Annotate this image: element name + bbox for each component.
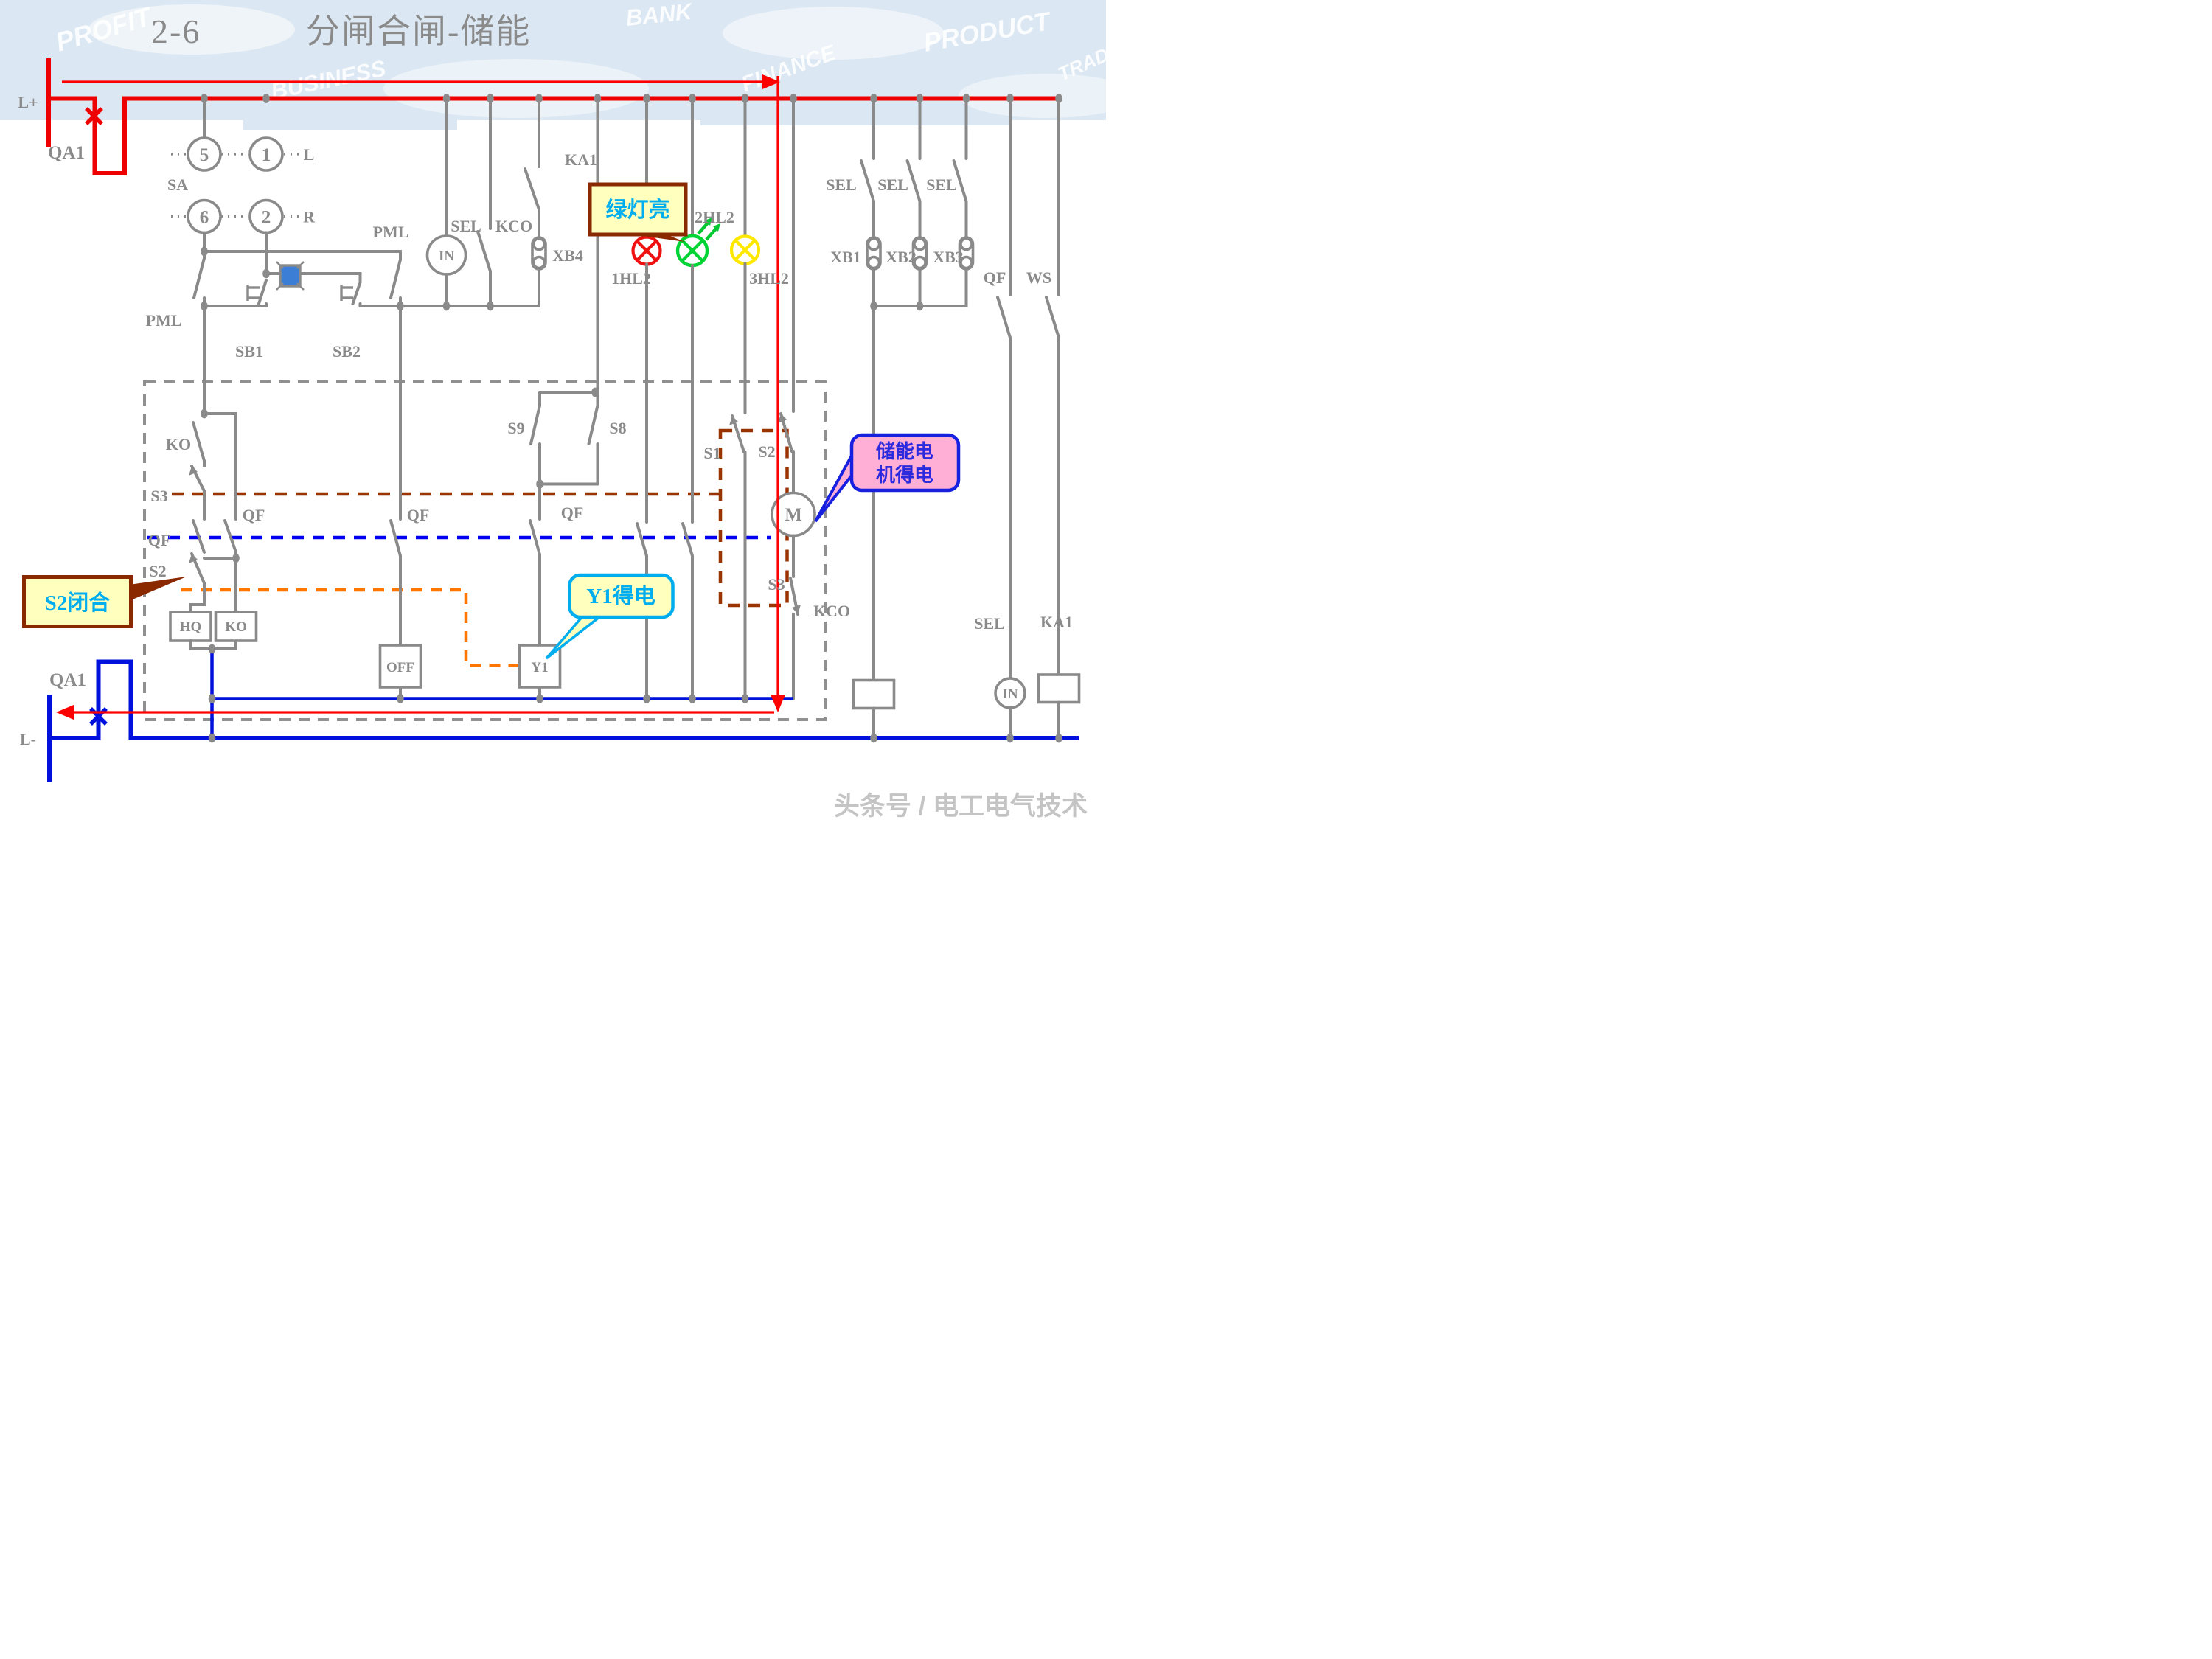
l-minus-label: L- (20, 730, 36, 748)
sel-c-label: SEL (926, 175, 957, 194)
pml-right-contact (391, 260, 400, 298)
s2-left-label: S2 (149, 562, 166, 580)
flow-arrow-left (56, 705, 74, 720)
kco-top-label: KCO (495, 217, 532, 235)
ko-contact (193, 422, 204, 461)
callout-motor-line1: 储能电 (876, 440, 933, 462)
sel-xb-trio (854, 99, 973, 739)
ko-coil-text: KO (225, 619, 247, 635)
feed-pml-right (204, 251, 400, 260)
map-blob-2 (383, 59, 649, 118)
callout-motor: 储能电 机得电 (815, 435, 959, 521)
callout-y1-text: Y1得电 (586, 583, 655, 608)
ko-switch-label: KO (166, 435, 191, 453)
ka1-top-label: KA1 (565, 150, 597, 169)
callout-motor-line2: 机得电 (876, 465, 933, 486)
pml-left-label: PML (146, 311, 182, 330)
pml-left-contact (194, 258, 204, 298)
kco-contact (478, 232, 490, 271)
xb2-branch (908, 99, 927, 307)
ka1-coil-box (1039, 675, 1079, 703)
sel-contact-b (908, 161, 920, 201)
qf-right-contact (998, 297, 1010, 338)
off-coil-text: OFF (386, 660, 414, 675)
credit-watermark: 头条号 / 电工电气技术 (834, 792, 1088, 821)
callout-y1: Y1得电 (546, 575, 673, 658)
sb2-label: SB2 (333, 342, 361, 361)
callout-y1-tail (546, 616, 600, 658)
qf-offcol-label: QF (407, 506, 430, 524)
callout-motor-tail (815, 456, 852, 521)
sel-b-label: SEL (877, 175, 908, 194)
xb1-label: XB1 (830, 248, 861, 266)
lamp-1hl2-red (633, 237, 661, 265)
s8-contact (589, 406, 598, 444)
l-plus-label: L+ (18, 93, 38, 111)
off-column (380, 306, 421, 699)
y1-coil-text: Y1 (531, 660, 548, 675)
qf-y1col-label: QF (561, 504, 584, 522)
sb2-button-head (341, 285, 353, 301)
s3-right-label: S3 (768, 575, 785, 594)
sa-2: 2 (262, 208, 271, 228)
xb2-label: XB2 (886, 248, 917, 266)
s1-label: S1 (703, 444, 720, 462)
ka1-bottom-label: KA1 (1040, 613, 1073, 631)
qf-contact-1hl2 (637, 524, 647, 556)
current-flow-path (56, 74, 785, 720)
sa-label: SA (167, 175, 188, 194)
in-top-text: IN (439, 248, 454, 264)
sb1-label: SB1 (235, 342, 263, 361)
xb1-branch (861, 99, 880, 307)
s8-label: S8 (609, 419, 626, 437)
lamp-3hl2-yellow (731, 237, 759, 264)
qf-ws-columns (995, 99, 1079, 739)
ws-contact (1046, 297, 1059, 338)
pml-right-label: PML (373, 223, 409, 241)
hq-coil-text: HQ (180, 619, 202, 635)
kco-coil-label: KCO (813, 602, 850, 620)
slide: PROFIT BUSINESS BANK FINANCE PRODUCT TRA… (0, 0, 1106, 829)
mechanism-dashed-box (145, 382, 825, 720)
xb4-label: XB4 (552, 246, 583, 265)
contact-row (194, 251, 400, 306)
kco-coil-box (854, 681, 894, 709)
sa-6: 6 (200, 208, 209, 228)
callout-s2: S2闭合 (24, 577, 187, 627)
in-bottom-text: IN (1002, 686, 1018, 702)
title-text: 分闸合闸-储能 (306, 13, 531, 50)
lamp-3hl2-s1-column (729, 99, 759, 699)
ws-label: WS (1026, 268, 1051, 287)
ka1-xb4-branch (525, 99, 546, 270)
dir-r-label: R (303, 208, 316, 226)
band-notch-1 (243, 111, 457, 130)
ka1-contact (525, 169, 539, 209)
qf-contact-y1col (530, 521, 540, 554)
sel-bottom-label: SEL (974, 614, 1005, 633)
title-number: 2-6 (151, 13, 201, 50)
sb2-contact (353, 282, 361, 304)
hl2-label: 2HL2 (695, 208, 734, 226)
sa-1: 1 (262, 145, 271, 165)
callout-s2-text: S2闭合 (45, 591, 111, 615)
sb1-contact (259, 280, 266, 304)
lamp-2hl2-green (678, 236, 707, 265)
hl1-label: 1HL2 (611, 269, 651, 288)
hl3-label: 3HL2 (749, 269, 789, 288)
s3-left-label: S3 (150, 487, 167, 505)
blue-indicator-button (280, 265, 300, 286)
qf-right-label: QF (984, 268, 1006, 287)
sel-contact-a (861, 161, 874, 201)
sa-5: 5 (200, 145, 209, 165)
xb3-branch (954, 99, 973, 307)
sel-a-label: SEL (826, 175, 857, 194)
flow-arrow-down (771, 695, 785, 712)
qa1-bottom-label: QA1 (49, 670, 86, 690)
s2-right-label: S2 (758, 442, 775, 461)
band-notch-2 (700, 111, 1010, 125)
callout-green-light: 绿灯亮 (590, 184, 686, 242)
sb1-button-head (248, 285, 260, 301)
qf-branch-label: QF (243, 506, 265, 524)
sel-in-top-label: SEL (451, 217, 481, 235)
qf-contact-2hl2 (683, 524, 692, 556)
qa1-top-label: QA1 (48, 143, 85, 163)
dir-l-label: L (304, 145, 315, 164)
xb3-label: XB3 (933, 248, 964, 266)
motor-text: M (785, 505, 802, 525)
kco-contact-top (478, 99, 490, 307)
s9-contact (531, 406, 540, 444)
s9-label: S9 (507, 419, 524, 437)
schematic-canvas: PROFIT BUSINESS BANK FINANCE PRODUCT TRA… (0, 0, 1106, 829)
qf-left-label: QF (148, 531, 171, 549)
callout-green-text: 绿灯亮 (605, 197, 669, 222)
